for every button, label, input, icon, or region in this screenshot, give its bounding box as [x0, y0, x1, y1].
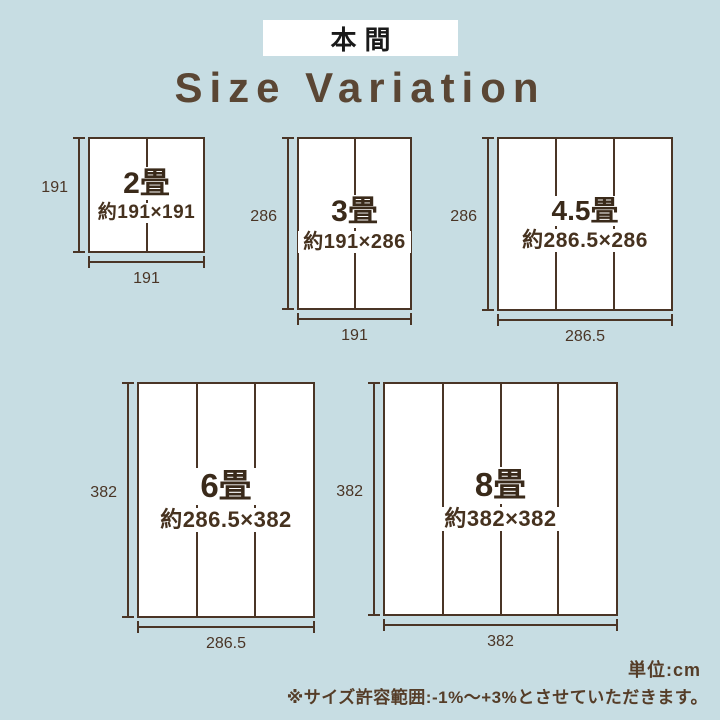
width-measure-label: 382 [383, 632, 618, 652]
mat-box: 2畳約191×191 [88, 137, 205, 253]
mat-divider-line [500, 384, 502, 614]
height-measure-label: 191 [24, 179, 68, 197]
page-title: Size Variation [0, 64, 720, 112]
height-measure-line [368, 382, 380, 616]
size-variation-diagram: 本間 Size Variation 2畳約191×1911911913畳約191… [0, 0, 720, 720]
size-dimensions: 約382×382 [439, 507, 561, 531]
width-measure-line [137, 621, 315, 633]
height-measure-label: 286 [233, 208, 277, 226]
size-dimensions: 約286.5×286 [517, 229, 653, 252]
width-measure-line [297, 313, 412, 325]
mat-divider-line [254, 384, 256, 616]
height-measure-label: 382 [73, 484, 117, 502]
size-name: 4.5畳 [547, 196, 624, 227]
width-measure-label: 286.5 [137, 634, 315, 654]
size-name: 2畳 [118, 167, 175, 200]
height-measure-line [282, 137, 294, 310]
size-name: 8畳 [470, 467, 531, 503]
mat-divider-line [555, 139, 557, 309]
mat-divider-line [557, 384, 559, 614]
width-measure-line [497, 314, 673, 326]
mat-box: 8畳約382×382 [383, 382, 618, 616]
mat-box: 3畳約191×286 [297, 137, 412, 310]
height-measure-label: 382 [319, 483, 363, 501]
size-name: 3畳 [326, 195, 383, 228]
mat-box: 4.5畳約286.5×286 [497, 137, 673, 311]
standard-badge-label: 本間 [322, 20, 398, 57]
height-measure-label: 286 [433, 208, 477, 226]
mat-box: 6畳約286.5×382 [137, 382, 315, 618]
width-measure-line [88, 256, 205, 268]
size-label-group: 2畳約191×191 [90, 139, 203, 251]
size-dimensions: 約191×191 [93, 203, 201, 224]
mat-divider-line [146, 139, 148, 251]
width-measure-line [383, 619, 618, 631]
mat-divider-line [442, 384, 444, 614]
height-measure-line [482, 137, 494, 311]
size-name: 6畳 [195, 468, 256, 504]
size-label-group: 4.5畳約286.5×286 [499, 139, 671, 309]
height-measure-line [73, 137, 85, 253]
mat-divider-line [613, 139, 615, 309]
mat-divider-line [196, 384, 198, 616]
size-label-group: 8畳約382×382 [385, 384, 616, 614]
tolerance-note: ※サイズ許容範囲:-1%〜+3%とさせていただきます。 [287, 683, 708, 708]
standard-badge: 本間 [263, 20, 458, 56]
size-dimensions: 約191×286 [298, 231, 410, 253]
width-measure-label: 286.5 [497, 327, 673, 347]
size-label-group: 6畳約286.5×382 [139, 384, 313, 616]
size-label-group: 3畳約191×286 [299, 139, 410, 308]
width-measure-label: 191 [297, 326, 412, 346]
width-measure-label: 191 [88, 269, 205, 289]
unit-label: 単位:cm [628, 656, 701, 682]
size-dimensions: 約286.5×382 [155, 508, 297, 532]
mat-divider-line [354, 139, 356, 308]
height-measure-line [122, 382, 134, 618]
